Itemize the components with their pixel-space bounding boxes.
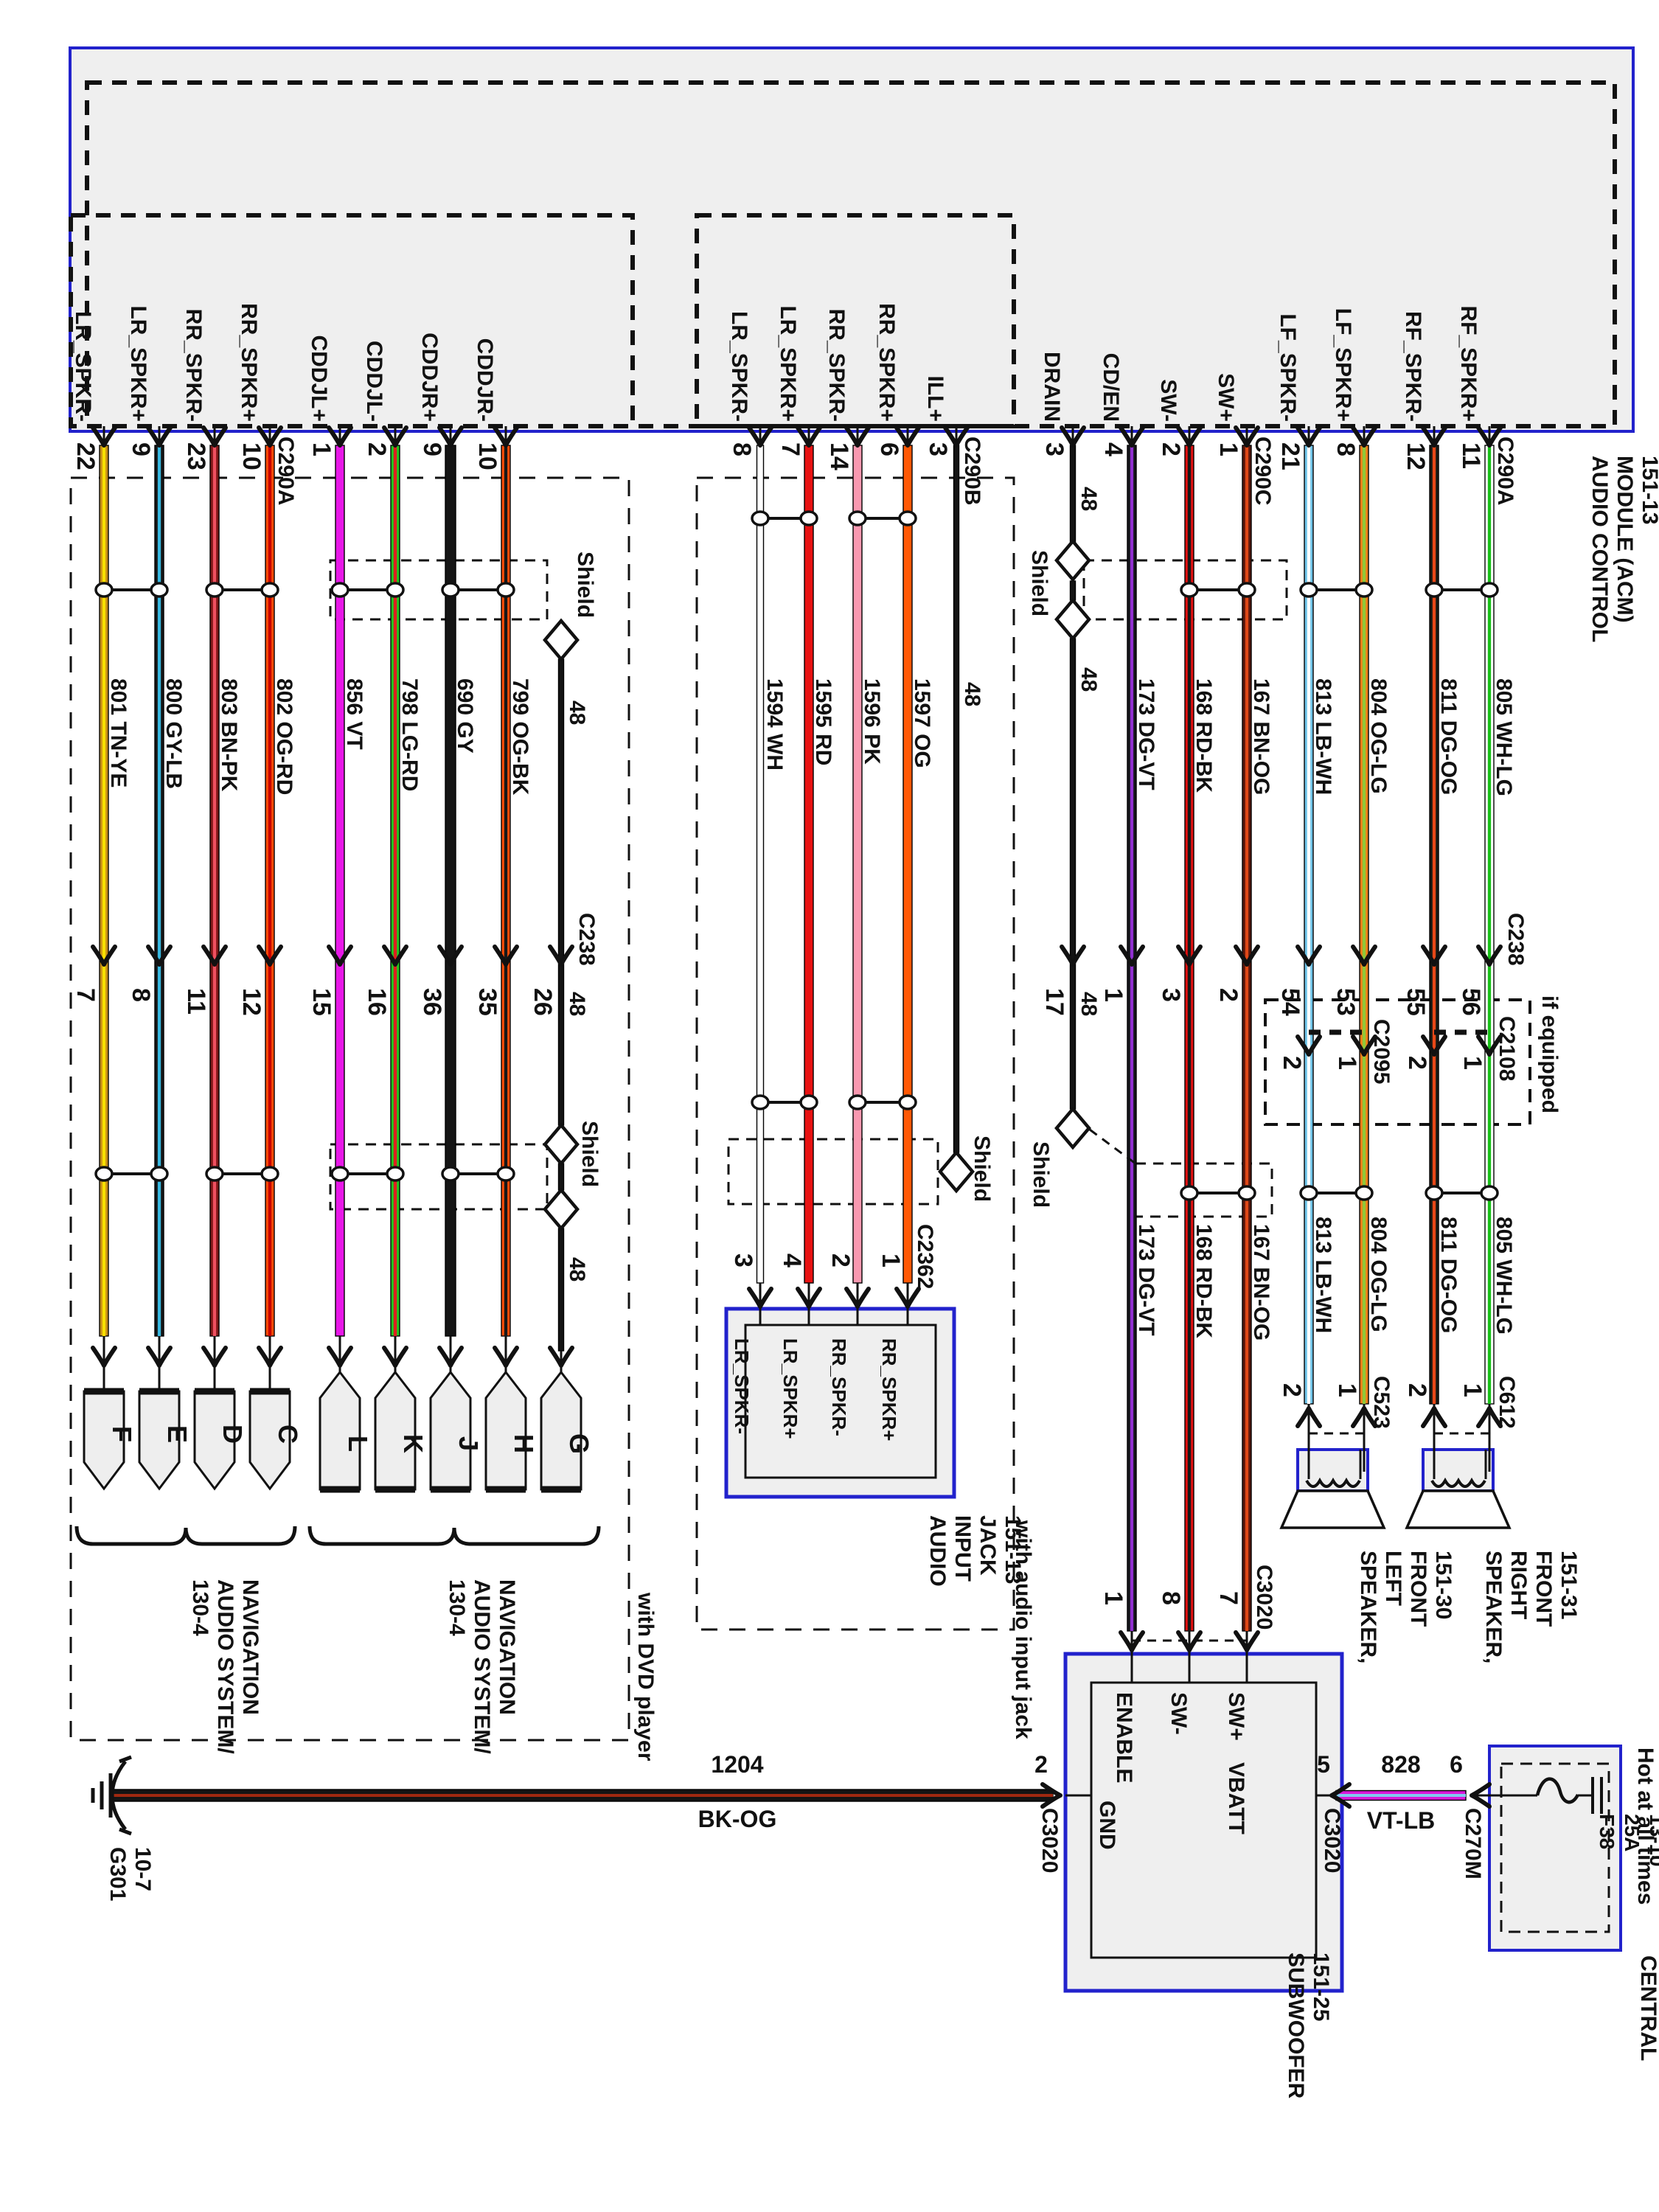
label-hot-at-all-times: Hot at all times (1633, 1747, 1658, 1905)
label-8: 8 (1332, 442, 1360, 456)
twist-circle-3-0 (442, 583, 459, 597)
label-c3020: C3020 (1037, 1808, 1062, 1873)
twist-circle-0-1 (151, 583, 167, 597)
label-c290a: C290A (274, 437, 298, 505)
label-17: 17 (1040, 988, 1068, 1016)
wire-48-drain-a (1071, 445, 1076, 543)
label-804-og-lg: 804 OG-LG (1366, 1217, 1391, 1332)
twist-circle-7-1 (801, 512, 817, 525)
label-167-bn-og: 167 BN-OG (1249, 678, 1273, 795)
wire-1594-WH (757, 445, 764, 1283)
ground-hook-top (119, 1757, 131, 1761)
label-48: 48 (1077, 667, 1101, 692)
label-if-equipped: if equipped (1537, 995, 1562, 1113)
label-cddjr+: CDDJR+ (417, 333, 442, 422)
twist-circle-5-0 (1301, 583, 1317, 597)
label-7: 7 (72, 988, 100, 1002)
twist-circle-12-1 (262, 1167, 278, 1180)
label-c2362: C2362 (913, 1224, 937, 1289)
terminal-letter-C: C (273, 1425, 303, 1444)
twist-circle-16-0 (1301, 1186, 1317, 1200)
label-53: 53 (1332, 988, 1360, 1016)
twist-circle-3-1 (498, 583, 514, 597)
label-10: 10 (473, 442, 501, 470)
label-rr-spkr+: RR_SPKR+ (874, 303, 899, 422)
label-35: 35 (473, 988, 501, 1016)
label-4: 4 (1099, 442, 1127, 456)
label-with-dvd-player: with DVD player (633, 1592, 658, 1761)
label-cddjr: CDDJR- (473, 338, 497, 422)
label-with-audio-input-jack: with audio input jack (1011, 1520, 1035, 1739)
shield-diamond-5 (1057, 1109, 1089, 1147)
wire-48-shield-g2 (954, 445, 959, 1152)
terminal-letter-H: H (509, 1434, 539, 1453)
group-brace-1 (310, 1526, 599, 1544)
wire-48-drain-b (1071, 581, 1076, 600)
shield-diamond-1 (545, 1125, 577, 1164)
label-56: 56 (1457, 988, 1485, 1016)
label-1595-rd: 1595 RD (811, 678, 835, 765)
label-audio-control-module-acm-151-13: AUDIO CONTROLMODULE (ACM)151-13 (1587, 456, 1659, 642)
label-8: 8 (728, 442, 756, 456)
twist-circle-14-0 (442, 1167, 459, 1180)
label-804-og-lg: 804 OG-LG (1366, 678, 1391, 794)
label-14: 14 (825, 442, 853, 470)
label-shield: Shield (1029, 1141, 1053, 1208)
label-1: 1 (1214, 442, 1242, 456)
label-11: 11 (1457, 442, 1485, 469)
label-lf-spkr: LF_SPKR- (1276, 313, 1300, 422)
label-lr-spkr: LR_SPKR- (71, 311, 95, 422)
label-2: 2 (827, 1253, 855, 1267)
twist-circle-9-1 (801, 1096, 817, 1109)
label-16: 16 (363, 988, 391, 1016)
label-vt-lb: VT-LB (1367, 1807, 1435, 1834)
label-rr-spkr: RR_SPKR- (824, 309, 849, 422)
label-12: 12 (237, 988, 265, 1016)
label-c290a: C290A (1493, 437, 1517, 505)
label-55: 55 (1402, 988, 1430, 1016)
label-1597-og: 1597 OG (910, 678, 934, 768)
twist-circle-17-1 (1481, 1186, 1498, 1200)
label-48: 48 (1077, 992, 1101, 1016)
wire-802-OG-RD-stripe (268, 445, 271, 1336)
label-sw+: SW+ (1214, 373, 1238, 422)
label-shield: Shield (573, 552, 597, 618)
label-856-vt: 856 VT (342, 678, 366, 750)
label-sw+: SW+ (1224, 1692, 1248, 1741)
wire-803-BN-PK-stripe (213, 445, 216, 1336)
label-ill+: ILL+ (923, 375, 947, 422)
label-c238: C238 (1503, 913, 1528, 966)
label-811-dg-og: 811 DG-OG (1436, 1217, 1461, 1333)
wire-828-VT-LB-stripe (1336, 1794, 1466, 1797)
label-48: 48 (565, 700, 589, 725)
label-1594-wh: 1594 WH (762, 678, 787, 771)
label-c238: C238 (574, 913, 599, 966)
twist-circle-2-0 (332, 583, 348, 597)
twist-circle-10-0 (849, 1096, 866, 1109)
wire-856-VT (335, 445, 344, 1336)
twist-circle-13-1 (387, 1167, 403, 1180)
twist-circle-15-1 (1239, 1186, 1255, 1200)
wire-1204-BK-OG-stripe (112, 1794, 1053, 1797)
label-shield: Shield (1027, 550, 1051, 616)
label-audio-input-jack-151-13: AUDIOINPUTJACK151-13 (925, 1515, 1025, 1587)
terminal-K (375, 1372, 415, 1489)
wire-167-BN-OG-stripe (1245, 445, 1248, 1631)
terminal-letter-K: K (398, 1434, 428, 1453)
group-brace-0 (77, 1526, 295, 1544)
twist-circle-10-1 (900, 1096, 916, 1109)
label-rr-spkr+: RR_SPKR+ (878, 1338, 900, 1441)
label-sw: SW- (1166, 1692, 1191, 1735)
label-bk-og: BK-OG (698, 1806, 777, 1832)
twist-circle-6-0 (1426, 583, 1442, 597)
label-1: 1 (1333, 1383, 1361, 1397)
label-173-dg-vt: 173 DG-VT (1134, 678, 1158, 790)
terminal-letter-E: E (162, 1425, 192, 1443)
label-173-dg-vt: 173 DG-VT (1134, 1224, 1158, 1336)
terminal-letter-F: F (107, 1426, 137, 1442)
twist-circle-11-0 (96, 1167, 112, 1180)
wire-48-drain-c (1071, 639, 1076, 1109)
label-rr-spkr: RR_SPKR- (181, 309, 206, 422)
wiring-diagram-page: FEDCLKJHGLR_SPKR-LR_SPKR+RR_SPKR-RR_SPKR… (0, 0, 1659, 2212)
label-c2108: C2108 (1495, 1016, 1519, 1081)
label-2: 2 (1157, 442, 1185, 456)
label-12: 12 (1402, 442, 1430, 470)
label-1204: 1204 (711, 1751, 763, 1778)
label-drain: DRAIN (1040, 352, 1064, 422)
label-7: 7 (1214, 1591, 1242, 1605)
label-1: 1 (877, 1253, 905, 1267)
label-2: 2 (1278, 1056, 1306, 1070)
label-c3020: C3020 (1320, 1808, 1344, 1873)
wire-48-shield-g1-a (559, 659, 564, 1125)
label-2: 2 (363, 442, 391, 456)
twist-circle-0-0 (96, 583, 112, 597)
twist-circle-14-1 (498, 1167, 514, 1180)
shield-diamond-2 (545, 1190, 577, 1228)
label-g301-10-7: G30110-7 (105, 1847, 155, 1901)
twist-circle-11-1 (151, 1167, 167, 1180)
label-central-junction-box-cjb-11-1: CENTRALJUNCTIONBOX (CJB)11-1 (1636, 1955, 1659, 2068)
label-11: 11 (182, 988, 210, 1015)
label-36: 36 (418, 988, 446, 1016)
twist-circle-17-0 (1426, 1186, 1442, 1200)
twist-circle-2-1 (387, 583, 403, 597)
terminal-letter-J: J (453, 1436, 484, 1451)
speaker-left-front-symbol-cone (1281, 1491, 1384, 1528)
label-lr-spkr: LR_SPKR- (731, 1338, 753, 1434)
label-798-lg-rd: 798 LG-RD (397, 678, 422, 791)
label-2: 2 (1403, 1056, 1431, 1070)
label-1: 1 (1458, 1056, 1486, 1070)
wire-1597-OG (903, 445, 912, 1283)
terminal-L (320, 1372, 360, 1489)
label-3: 3 (1040, 442, 1068, 456)
label-2: 2 (1214, 988, 1242, 1002)
twist-circle-8-1 (900, 512, 916, 525)
terminal-H (486, 1372, 526, 1489)
label-799-og-bk: 799 OG-BK (508, 678, 532, 796)
twist-circle-15-0 (1181, 1186, 1197, 1200)
label-130-4-audio-system-navigation: 130-4AUDIO SYSTEM/NAVIGATION (445, 1579, 519, 1754)
shield-diamond-6 (940, 1152, 973, 1191)
label-rr-spkr+: RR_SPKR+ (237, 303, 261, 422)
label-lr-spkr: LR_SPKR- (727, 311, 751, 422)
label-4: 4 (778, 1253, 806, 1267)
label-22: 22 (72, 442, 100, 470)
label-subwoofer-151-25: SUBWOOFER151-25 (1284, 1952, 1333, 2099)
label-168-rd-bk: 168 RD-BK (1192, 678, 1216, 793)
twist-circle-7-0 (752, 512, 768, 525)
label-c290b: C290B (960, 437, 984, 505)
label-c612: C612 (1495, 1376, 1519, 1429)
label-801-tn-ye: 801 TN-YE (106, 678, 131, 787)
label-vbatt: VBATT (1224, 1762, 1248, 1834)
label-speaker-left-front-151-30: SPEAKER,LEFTFRONT151-30 (1356, 1551, 1455, 1663)
twist-circle-9-0 (752, 1096, 768, 1109)
speaker-right-front-symbol-cone (1407, 1491, 1509, 1528)
label-48: 48 (565, 992, 589, 1016)
label-828: 828 (1381, 1751, 1420, 1778)
shield-diamond-0 (545, 621, 577, 659)
label-gnd: GND (1095, 1801, 1119, 1850)
label-7: 7 (776, 442, 804, 456)
label-3: 3 (729, 1253, 757, 1267)
label-rf-spkr: RF_SPKR- (1401, 311, 1425, 422)
label-6: 6 (1450, 1751, 1463, 1778)
label-54: 54 (1276, 988, 1304, 1016)
label-enable: ENABLE (1112, 1692, 1136, 1783)
label-805-wh-lg: 805 WH-LG (1492, 1217, 1516, 1335)
label-813-lb-wh: 813 LB-WH (1311, 1217, 1335, 1333)
label-690-gy: 690 GY (453, 678, 477, 754)
label-lf-spkr+: LF_SPKR+ (1331, 308, 1355, 422)
label-1596-pk: 1596 PK (860, 678, 884, 765)
label-shield: Shield (970, 1135, 994, 1202)
label-2: 2 (1403, 1383, 1431, 1397)
label-cddjl: CDDJL- (362, 341, 386, 422)
label-1: 1 (1099, 988, 1127, 1002)
label-48: 48 (960, 682, 984, 706)
label-48: 48 (565, 1257, 589, 1281)
label-cddjl+: CDDJL+ (307, 335, 331, 422)
label-rr-spkr: RR_SPKR- (828, 1338, 850, 1436)
shield-diamond-3 (1057, 541, 1089, 580)
label-3: 3 (924, 442, 952, 456)
twist-circle-4-1 (1239, 583, 1255, 597)
terminal-letter-G: G (564, 1433, 594, 1454)
label-lr-spkr+: LR_SPKR+ (126, 305, 150, 422)
twist-circle-1-0 (206, 583, 223, 597)
label-48: 48 (1077, 487, 1101, 511)
label-cd-en: CD/EN (1099, 353, 1123, 422)
label-8: 8 (127, 988, 155, 1002)
acm-outer-box (70, 48, 1633, 431)
twist-circle-5-1 (1356, 583, 1372, 597)
wire-1595-RD (804, 445, 813, 1283)
label-800-gy-lb: 800 GY-LB (161, 678, 186, 789)
terminal-J (431, 1372, 470, 1489)
label-8: 8 (1157, 1591, 1185, 1605)
wire-799-OG-BK-stripe (504, 445, 507, 1336)
label-c523: C523 (1369, 1376, 1394, 1429)
label-802-og-rd: 802 OG-RD (272, 678, 296, 795)
twist-circle-13-0 (332, 1167, 348, 1180)
wire-48-shield-g1-b (559, 1164, 564, 1190)
label-803-bn-pk: 803 BN-PK (217, 678, 241, 792)
label-c270m: C270M (1461, 1808, 1485, 1879)
wire-801-TN-YE-stripe (102, 445, 105, 1336)
label-c290c: C290C (1251, 437, 1275, 505)
label-5: 5 (1317, 1751, 1330, 1778)
label-c3020: C3020 (1252, 1565, 1276, 1630)
label-shield: Shield (577, 1121, 602, 1187)
label-2: 2 (1034, 1751, 1048, 1778)
label-167-bn-og: 167 BN-OG (1249, 1224, 1273, 1340)
label-1: 1 (1099, 1591, 1127, 1605)
label-c2095: C2095 (1369, 1019, 1394, 1084)
wire-1596-PK (853, 445, 862, 1283)
wire-800-GY-LB-stripe (158, 445, 161, 1336)
label-9: 9 (127, 442, 155, 456)
terminal-G (541, 1372, 581, 1489)
label-168-rd-bk: 168 RD-BK (1192, 1224, 1216, 1338)
label-lr-spkr+: LR_SPKR+ (779, 1338, 801, 1439)
label-9: 9 (418, 442, 446, 456)
label-813-lb-wh: 813 LB-WH (1311, 678, 1335, 795)
label-805-wh-lg: 805 WH-LG (1492, 678, 1516, 796)
label-23: 23 (182, 442, 210, 470)
diagram-canvas: FEDCLKJHGLR_SPKR-LR_SPKR+RR_SPKR-RR_SPKR… (0, 0, 1659, 2212)
twist-circle-12-0 (206, 1167, 223, 1180)
label-3: 3 (1157, 988, 1185, 1002)
label-1: 1 (1458, 1383, 1486, 1397)
wire-173-DG-VT-stripe (1130, 445, 1133, 1631)
label-speaker-right-front-151-31: SPEAKER,RIGHTFRONT151-31 (1481, 1551, 1581, 1663)
label-15: 15 (307, 988, 335, 1016)
shield-rect-3 (330, 1144, 547, 1209)
terminal-letter-L: L (343, 1436, 373, 1452)
wire-690-GY (445, 445, 456, 1336)
ground-hook-bottom (119, 1829, 131, 1834)
terminal-letter-D: D (218, 1425, 248, 1444)
wire-798-LG-RD-stripe (394, 445, 397, 1336)
twist-circle-6-1 (1481, 583, 1498, 597)
label-10: 10 (237, 442, 265, 470)
label-sw: SW- (1156, 379, 1180, 422)
label-130-4-audio-system-navigation: 130-4AUDIO SYSTEM/NAVIGATION (188, 1579, 262, 1754)
label-21: 21 (1276, 442, 1304, 470)
label-lr-spkr+: LR_SPKR+ (776, 305, 800, 422)
twist-circle-16-1 (1356, 1186, 1372, 1200)
twist-circle-1-1 (262, 583, 278, 597)
label-2: 2 (1278, 1383, 1306, 1397)
twist-circle-8-0 (849, 512, 866, 525)
label-1: 1 (307, 442, 335, 456)
label-811-dg-og: 811 DG-OG (1436, 678, 1461, 795)
label-rf-spkr+: RF_SPKR+ (1456, 305, 1481, 422)
label-26: 26 (529, 988, 557, 1016)
twist-circle-4-0 (1181, 583, 1197, 597)
label-6: 6 (875, 442, 903, 456)
label-1: 1 (1333, 1056, 1361, 1070)
wire-48-shield-g1-c (559, 1228, 564, 1351)
wire-168-RD-BK-stripe (1188, 445, 1191, 1631)
